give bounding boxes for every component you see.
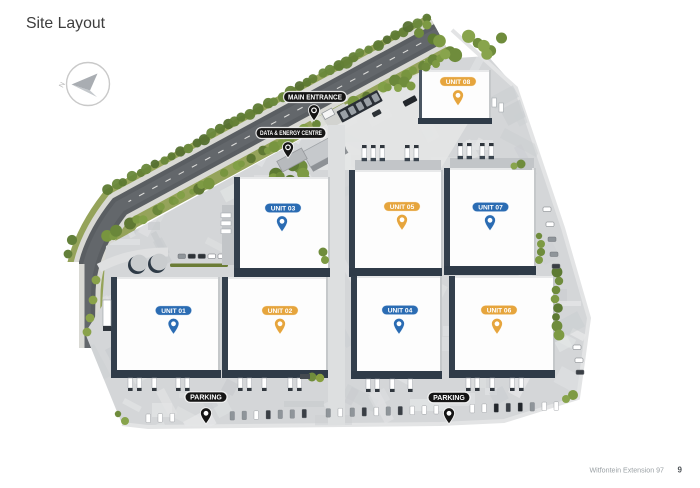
svg-text:Witfontein Extension 97: Witfontein Extension 97 (589, 467, 664, 475)
svg-text:Site Layout: Site Layout (26, 15, 106, 32)
svg-text:UNIT 02: UNIT 02 (268, 308, 293, 315)
svg-text:UNIT 03: UNIT 03 (271, 205, 296, 212)
svg-text:UNIT 01: UNIT 01 (161, 308, 186, 315)
svg-text:PARKING: PARKING (190, 395, 222, 402)
svg-text:PARKING: PARKING (433, 395, 465, 402)
svg-text:DATA & ENERGY CENTRE: DATA & ENERGY CENTRE (260, 130, 322, 137)
svg-text:UNIT 06: UNIT 06 (487, 307, 512, 314)
svg-text:MAIN ENTRANCE: MAIN ENTRANCE (288, 93, 342, 102)
svg-text:UNIT 05: UNIT 05 (390, 204, 415, 211)
svg-text:9: 9 (678, 466, 683, 475)
svg-text:UNIT 07: UNIT 07 (478, 204, 503, 211)
svg-text:UNIT 04: UNIT 04 (388, 307, 413, 314)
svg-text:UNIT 08: UNIT 08 (446, 79, 471, 86)
